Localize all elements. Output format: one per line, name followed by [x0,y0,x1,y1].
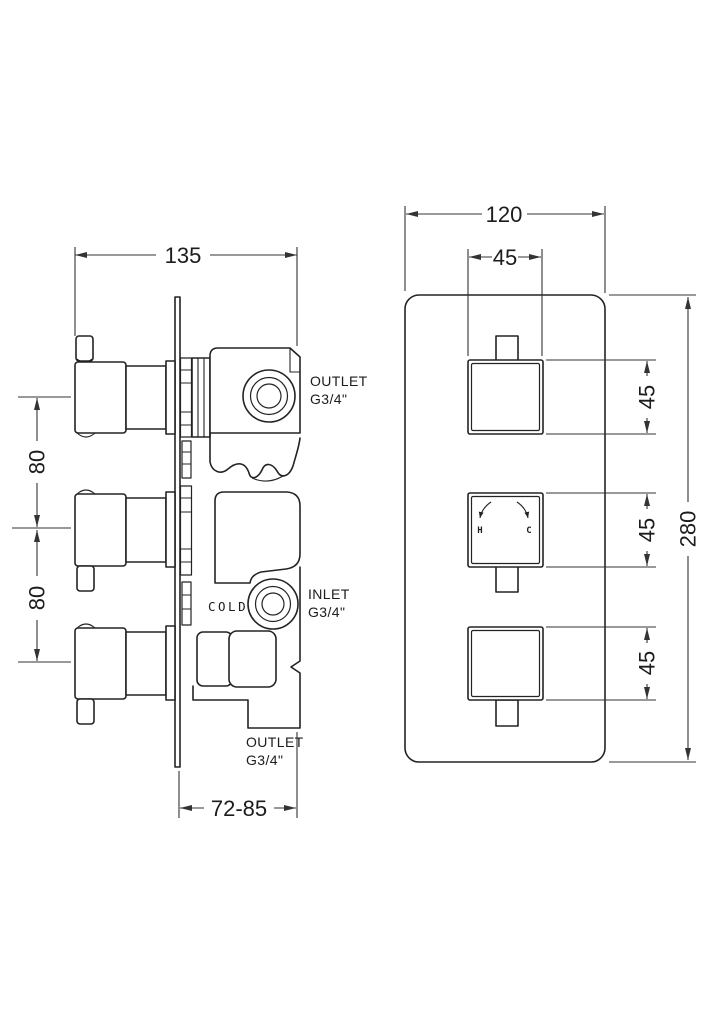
outlet-bottom-label-line1: OUTLET [246,734,304,750]
technical-drawing-shower-valve: 135 80 80 [0,0,724,1024]
handle-square-inner [472,364,540,431]
mounting-rails [181,358,192,625]
drawing-svg: 135 80 80 [0,0,724,1024]
handle-knob [77,566,94,591]
handle-knob [77,699,94,724]
pipework-curves [210,433,300,481]
lower-block-right [229,631,276,687]
hot-letter: H [477,526,482,536]
dim-45h-1-value: 45 [635,385,660,409]
handle-tab [496,336,518,362]
front-view: 120 45 H C [405,202,701,762]
handle-stem [126,632,166,695]
outlet-top-label-line1: OUTLET [310,373,368,389]
pipe-profile [210,433,300,478]
handle-knob [76,336,93,361]
handle-body [75,628,126,699]
inlet-label-line1: INLET [308,586,350,602]
handle-tab [496,566,518,592]
dim-280-value: 280 [676,511,701,548]
handle-top-side [75,336,175,437]
valve-body-top-block [210,348,300,433]
dim-135-value: 135 [165,243,202,268]
cartridge-body [192,358,210,437]
dim-120-value: 120 [486,202,523,227]
dim-45w-value: 45 [493,245,517,270]
dim-width-135: 135 [75,243,297,346]
handle-flange [166,626,175,700]
dim-45h-2-value: 45 [635,518,660,542]
handle-stem [126,498,166,562]
dim-7285-value: 72-85 [211,796,267,821]
handle-bottom-side [75,624,175,724]
cold-marking: COLD [208,599,248,614]
middle-block-outline [215,492,300,583]
rail-segment [182,441,191,478]
outlet-bottom-label-line2: G3/4" [246,752,283,768]
lower-block-left [197,632,232,686]
dim-80-extension-lines [12,397,71,662]
handle-middle-side [75,490,175,591]
dim-80-top-value: 80 [25,450,50,474]
handle-stem [126,366,166,429]
side-view: 135 80 80 [12,243,368,821]
dim-45h-3-value: 45 [635,651,660,675]
handle-square-inner [472,631,540,697]
inlet-label-line2: G3/4" [308,604,345,620]
handle-flange [166,361,175,434]
outlet-port-inner [257,384,281,408]
cartridge-neck [192,358,210,437]
dim-80-bottom-value: 80 [25,586,50,610]
handle-body [75,362,126,433]
rail-segment [182,582,191,625]
outlet-top-label-line2: G3/4" [310,391,347,407]
handle-body [75,494,126,566]
handle-flange [166,492,175,567]
cold-letter: C [526,526,531,536]
handle-tab [496,700,518,726]
dim-pitch-80: 80 80 [12,397,71,662]
inlet-port-inner [262,593,284,615]
